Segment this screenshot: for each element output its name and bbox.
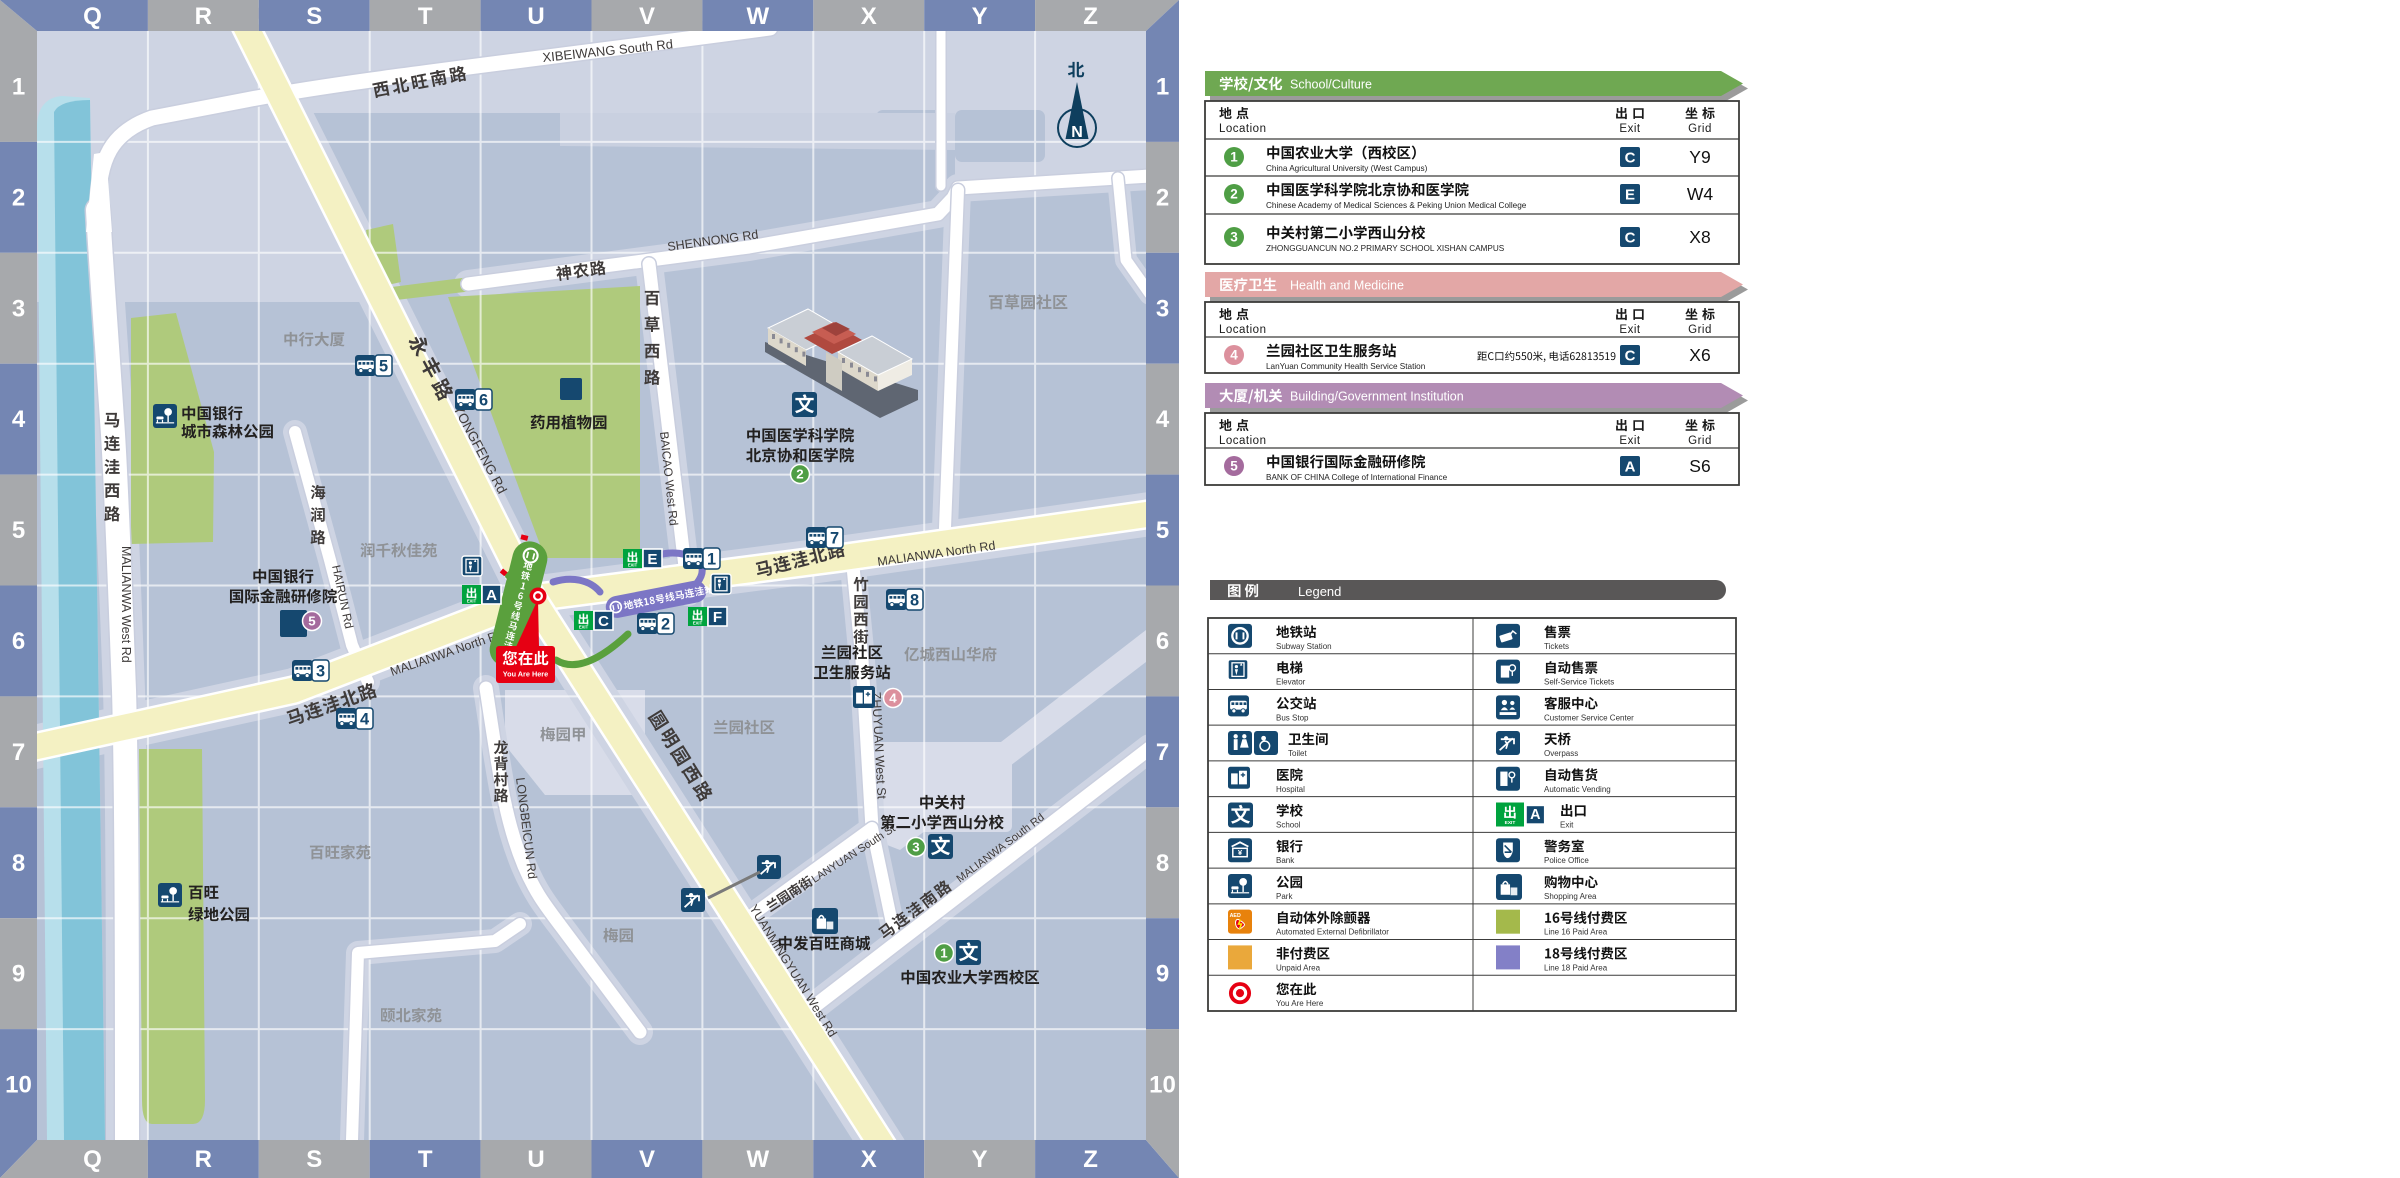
svg-text:W: W bbox=[747, 1146, 770, 1173]
svg-text:Shopping Area: Shopping Area bbox=[1544, 892, 1597, 901]
svg-text:U: U bbox=[527, 3, 544, 30]
svg-text:1: 1 bbox=[707, 550, 716, 568]
svg-text:W: W bbox=[747, 3, 770, 30]
svg-text:2: 2 bbox=[661, 615, 670, 633]
svg-text:E: E bbox=[1625, 187, 1635, 204]
svg-text:R: R bbox=[195, 1146, 212, 1173]
svg-text:6: 6 bbox=[12, 628, 25, 655]
svg-text:N: N bbox=[1071, 124, 1083, 141]
svg-text:China Agricultural University: China Agricultural University (West Camp… bbox=[1266, 164, 1428, 173]
svg-text:C: C bbox=[598, 613, 609, 630]
svg-text:Line 18 Paid Area: Line 18 Paid Area bbox=[1544, 963, 1608, 972]
svg-text:8: 8 bbox=[1156, 850, 1169, 877]
svg-text:A: A bbox=[1625, 459, 1636, 476]
svg-text:2: 2 bbox=[1230, 187, 1238, 202]
svg-text:1: 1 bbox=[12, 73, 25, 100]
svg-text:7: 7 bbox=[830, 529, 839, 547]
svg-text:School: School bbox=[1276, 821, 1301, 830]
svg-text:F: F bbox=[713, 609, 722, 626]
svg-text:5: 5 bbox=[12, 517, 25, 544]
svg-text:4: 4 bbox=[1230, 348, 1238, 363]
svg-text:1: 1 bbox=[1230, 150, 1238, 165]
svg-text:Y9: Y9 bbox=[1689, 147, 1710, 167]
svg-text:4: 4 bbox=[12, 406, 26, 433]
svg-text:X8: X8 bbox=[1689, 227, 1710, 247]
svg-text:Police Office: Police Office bbox=[1544, 856, 1589, 865]
svg-text:Chinese Academy of Medical Sci: Chinese Academy of Medical Sciences & Pe… bbox=[1266, 201, 1527, 210]
svg-text:Park: Park bbox=[1276, 892, 1293, 901]
svg-text:EXIT: EXIT bbox=[693, 621, 703, 626]
svg-text:9: 9 bbox=[12, 961, 25, 988]
svg-text:Customer Service Center: Customer Service Center bbox=[1544, 713, 1634, 722]
svg-text:3: 3 bbox=[12, 295, 25, 322]
svg-text:Hospital: Hospital bbox=[1276, 785, 1305, 794]
svg-text:4: 4 bbox=[1156, 406, 1170, 433]
svg-text:Y: Y bbox=[972, 1146, 988, 1173]
svg-text:X6: X6 bbox=[1689, 345, 1710, 365]
svg-text:Bus Stop: Bus Stop bbox=[1276, 713, 1309, 722]
svg-text:Subway Station: Subway Station bbox=[1276, 642, 1332, 651]
svg-text:X: X bbox=[861, 1146, 877, 1173]
svg-text:Grid: Grid bbox=[1688, 324, 1712, 336]
svg-text:C: C bbox=[1625, 348, 1636, 365]
svg-text:1: 1 bbox=[1156, 73, 1169, 100]
svg-text:Automated External Defibrillat: Automated External Defibrillator bbox=[1276, 928, 1389, 937]
svg-text:X: X bbox=[861, 3, 877, 30]
svg-text:A: A bbox=[486, 587, 497, 604]
svg-text:EXIT: EXIT bbox=[579, 625, 589, 630]
svg-text:Exit: Exit bbox=[1619, 435, 1640, 447]
svg-text:You Are Here: You Are Here bbox=[1276, 999, 1324, 1008]
svg-text:Q: Q bbox=[83, 3, 102, 30]
svg-text:BANK OF CHINA College of Inter: BANK OF CHINA College of International F… bbox=[1266, 473, 1448, 482]
svg-text:10: 10 bbox=[1149, 1072, 1176, 1099]
svg-text:W4: W4 bbox=[1687, 184, 1714, 204]
svg-text:AED: AED bbox=[1230, 913, 1241, 919]
svg-text:ZHONGGUANCUN NO.2 PRIMARY SCHO: ZHONGGUANCUN NO.2 PRIMARY SCHOOL XISHAN … bbox=[1266, 244, 1505, 253]
svg-text:T: T bbox=[418, 3, 433, 30]
svg-text:Self-Service Tickets: Self-Service Tickets bbox=[1544, 678, 1614, 687]
svg-text:Health and Medicine: Health and Medicine bbox=[1290, 279, 1404, 293]
svg-text:You Are Here: You Are Here bbox=[503, 670, 548, 679]
svg-text:Location: Location bbox=[1219, 324, 1266, 336]
svg-text:Grid: Grid bbox=[1688, 435, 1712, 447]
svg-text:10: 10 bbox=[5, 1072, 32, 1099]
svg-text:1: 1 bbox=[940, 946, 948, 961]
svg-text:3: 3 bbox=[1156, 295, 1169, 322]
svg-text:Z: Z bbox=[1083, 1146, 1098, 1173]
svg-text:Unpaid Area: Unpaid Area bbox=[1276, 963, 1321, 972]
svg-text:3: 3 bbox=[912, 840, 919, 855]
svg-text:8: 8 bbox=[910, 591, 919, 609]
svg-text:C: C bbox=[1625, 150, 1636, 167]
svg-text:5: 5 bbox=[1156, 517, 1169, 544]
svg-text:MALIANWA West Rd: MALIANWA West Rd bbox=[119, 546, 133, 663]
svg-text:R: R bbox=[195, 3, 212, 30]
svg-text:EXIT: EXIT bbox=[1505, 820, 1516, 826]
svg-text:Line 16 Paid Area: Line 16 Paid Area bbox=[1544, 928, 1608, 937]
svg-text:3: 3 bbox=[1230, 230, 1238, 245]
svg-text:¥: ¥ bbox=[1238, 848, 1243, 857]
svg-text:U: U bbox=[527, 1146, 544, 1173]
svg-text:EXIT: EXIT bbox=[467, 599, 477, 604]
svg-text:EXIT: EXIT bbox=[628, 563, 638, 568]
svg-text:S6: S6 bbox=[1689, 456, 1710, 476]
svg-text:5: 5 bbox=[379, 357, 388, 375]
svg-text:A: A bbox=[1530, 807, 1541, 823]
svg-text:S: S bbox=[306, 3, 322, 30]
svg-text:Bank: Bank bbox=[1276, 856, 1295, 865]
svg-text:2: 2 bbox=[796, 467, 803, 482]
svg-text:LanYuan Community Health Servi: LanYuan Community Health Service Station bbox=[1266, 362, 1426, 371]
svg-text:Legend: Legend bbox=[1298, 584, 1341, 599]
svg-text:V: V bbox=[639, 3, 655, 30]
svg-text:5: 5 bbox=[308, 614, 316, 629]
svg-text:7: 7 bbox=[12, 739, 25, 766]
svg-text:Location: Location bbox=[1219, 435, 1266, 447]
svg-text:School/Culture: School/Culture bbox=[1290, 78, 1372, 92]
svg-text:Exit: Exit bbox=[1560, 821, 1574, 830]
svg-text:Grid: Grid bbox=[1688, 123, 1712, 135]
svg-text:Y: Y bbox=[972, 3, 988, 30]
svg-text:E: E bbox=[647, 551, 657, 568]
svg-text:4: 4 bbox=[360, 710, 370, 728]
svg-text:9: 9 bbox=[1156, 961, 1169, 988]
svg-text:6: 6 bbox=[1156, 628, 1169, 655]
svg-text:6: 6 bbox=[479, 391, 488, 409]
svg-text:5: 5 bbox=[1230, 459, 1238, 474]
svg-text:Exit: Exit bbox=[1619, 324, 1640, 336]
svg-text:Z: Z bbox=[1083, 3, 1098, 30]
svg-text:3: 3 bbox=[316, 662, 325, 680]
svg-text:T: T bbox=[418, 1146, 433, 1173]
svg-text:Tickets: Tickets bbox=[1544, 642, 1569, 651]
svg-text:2: 2 bbox=[1156, 184, 1169, 211]
svg-text:S: S bbox=[306, 1146, 322, 1173]
svg-text:Location: Location bbox=[1219, 123, 1266, 135]
svg-text:8: 8 bbox=[12, 850, 25, 877]
svg-text:Building/Government Institutio: Building/Government Institution bbox=[1290, 390, 1464, 404]
svg-text:Overpass: Overpass bbox=[1544, 749, 1578, 758]
svg-text:Elevator: Elevator bbox=[1276, 678, 1306, 687]
svg-text:2: 2 bbox=[12, 184, 25, 211]
svg-text:4: 4 bbox=[889, 691, 897, 706]
svg-text:C: C bbox=[1625, 230, 1636, 247]
svg-text:Toilet: Toilet bbox=[1288, 749, 1307, 758]
svg-text:Automatic Vending: Automatic Vending bbox=[1544, 785, 1611, 794]
svg-text:V: V bbox=[639, 1146, 655, 1173]
svg-text:7: 7 bbox=[1156, 739, 1169, 766]
svg-text:Exit: Exit bbox=[1619, 123, 1640, 135]
svg-text:Q: Q bbox=[83, 1146, 102, 1173]
